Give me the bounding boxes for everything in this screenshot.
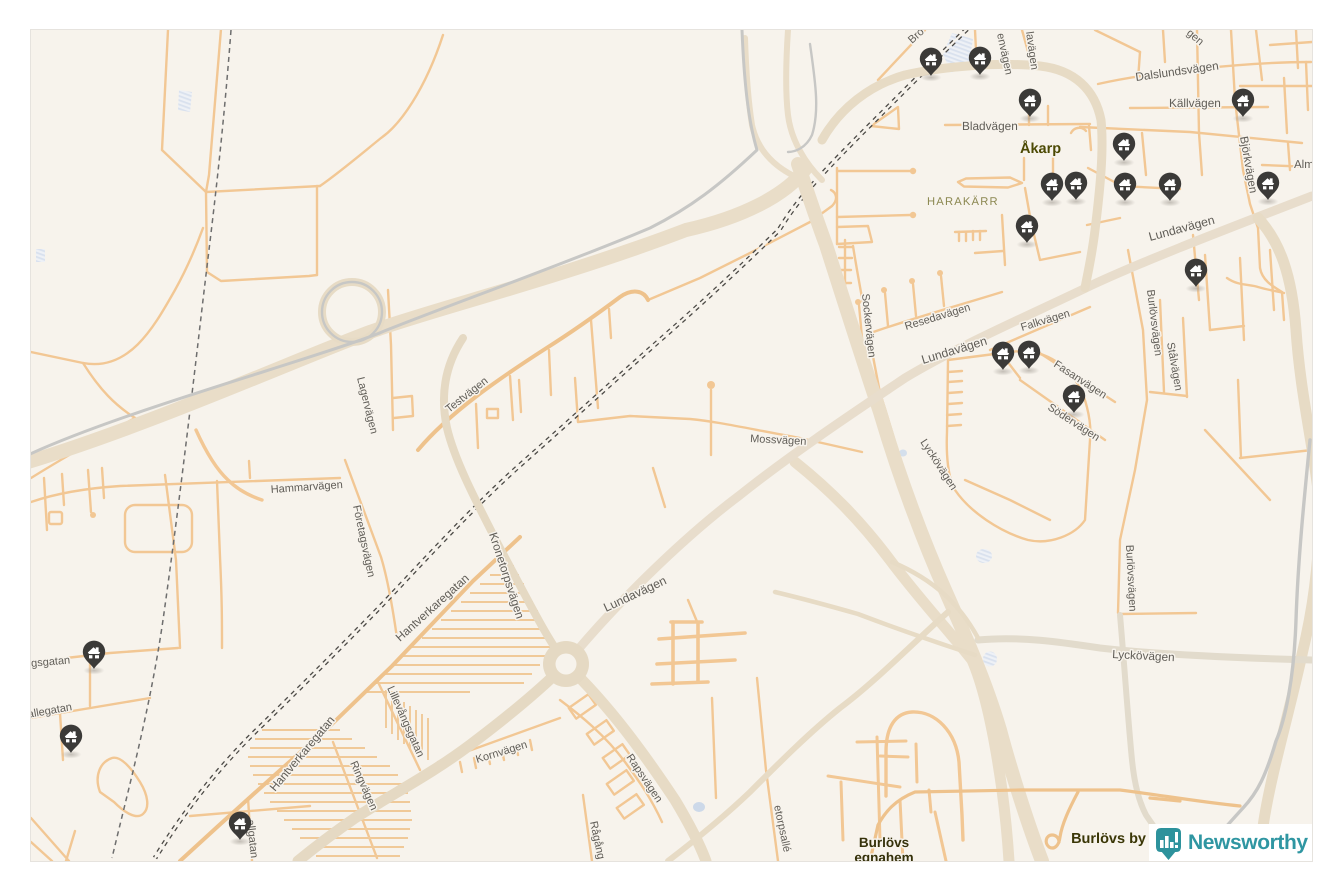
svg-text:Åkarp: Åkarp (1020, 140, 1061, 157)
svg-text:Bladvägen: Bladvägen (962, 119, 1018, 133)
svg-text:Burlövs by: Burlövs by (1071, 831, 1146, 847)
svg-text:Källvägen: Källvägen (1169, 96, 1221, 110)
svg-text:Newsworthy: Newsworthy (1188, 831, 1308, 854)
svg-text:HARAKÄRR: HARAKÄRR (927, 195, 999, 208)
svg-text:egnahem: egnahem (854, 850, 913, 865)
svg-text:Alm: Alm (1294, 159, 1314, 171)
svg-text:Burlövs: Burlövs (859, 835, 909, 850)
